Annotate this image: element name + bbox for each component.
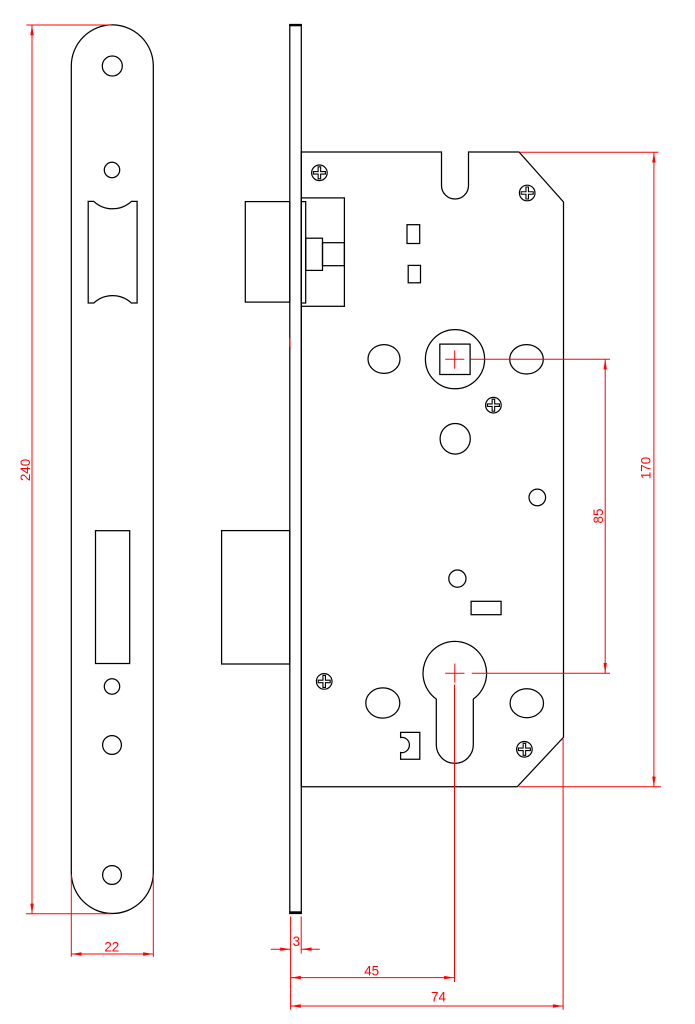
svg-text:240: 240 [18, 459, 33, 481]
svg-text:170: 170 [639, 457, 654, 479]
svg-text:45: 45 [364, 964, 379, 979]
svg-text:3: 3 [293, 934, 300, 949]
svg-text:74: 74 [431, 989, 446, 1004]
svg-text:85: 85 [591, 509, 606, 524]
svg-text:22: 22 [104, 940, 119, 955]
